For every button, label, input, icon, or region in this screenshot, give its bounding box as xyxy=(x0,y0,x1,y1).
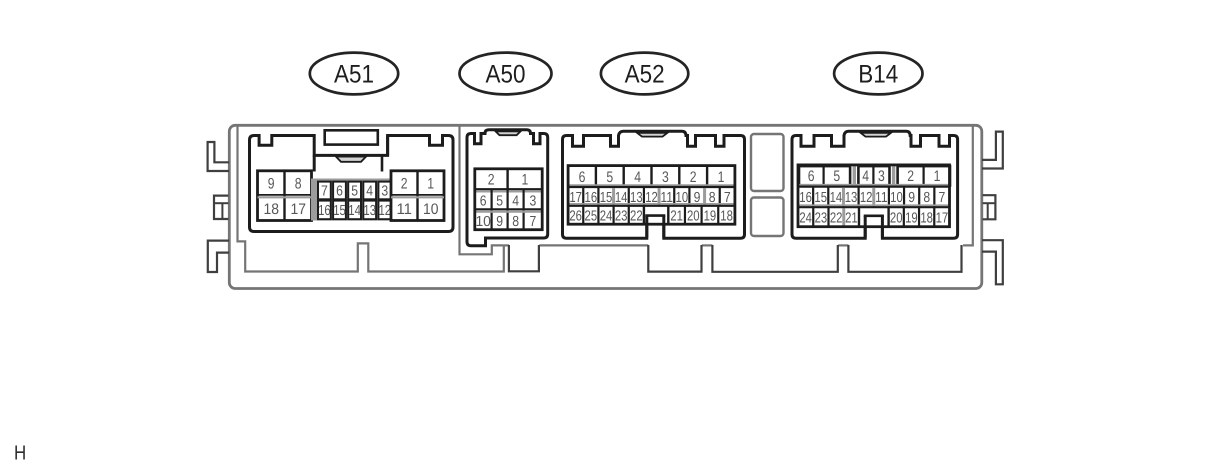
svg-text:10: 10 xyxy=(890,190,903,206)
svg-text:6: 6 xyxy=(579,169,586,186)
svg-text:14: 14 xyxy=(830,190,843,206)
svg-text:10: 10 xyxy=(423,201,439,218)
svg-text:20: 20 xyxy=(687,209,700,225)
svg-text:19: 19 xyxy=(704,209,717,225)
svg-text:1: 1 xyxy=(522,172,529,189)
svg-text:5: 5 xyxy=(351,184,358,200)
svg-text:18: 18 xyxy=(920,210,933,226)
svg-text:2: 2 xyxy=(907,168,914,185)
svg-text:13: 13 xyxy=(845,190,858,206)
svg-text:19: 19 xyxy=(905,210,918,226)
svg-text:5: 5 xyxy=(606,169,613,186)
svg-text:4: 4 xyxy=(862,168,869,185)
svg-text:21: 21 xyxy=(670,209,683,225)
svg-text:11: 11 xyxy=(875,190,888,206)
svg-text:A52: A52 xyxy=(625,61,665,89)
svg-text:12: 12 xyxy=(379,203,392,219)
svg-text:18: 18 xyxy=(263,201,279,218)
svg-text:18: 18 xyxy=(720,209,733,225)
svg-text:23: 23 xyxy=(615,209,628,225)
svg-text:6: 6 xyxy=(808,168,815,185)
svg-text:5: 5 xyxy=(496,194,503,210)
svg-text:7: 7 xyxy=(530,214,537,230)
svg-text:22: 22 xyxy=(630,209,643,225)
svg-text:8: 8 xyxy=(923,190,930,206)
svg-text:16: 16 xyxy=(318,203,331,219)
svg-text:5: 5 xyxy=(833,168,840,185)
svg-text:1: 1 xyxy=(718,169,725,186)
svg-text:24: 24 xyxy=(600,209,613,225)
svg-text:12: 12 xyxy=(860,190,873,206)
svg-text:B14: B14 xyxy=(858,61,898,89)
svg-text:2: 2 xyxy=(401,176,408,193)
svg-text:20: 20 xyxy=(890,210,903,226)
svg-text:17: 17 xyxy=(290,201,306,218)
svg-text:H: H xyxy=(14,443,26,465)
svg-text:1: 1 xyxy=(427,176,434,193)
svg-text:16: 16 xyxy=(799,190,812,206)
svg-text:2: 2 xyxy=(690,169,697,186)
svg-text:1: 1 xyxy=(934,168,941,185)
svg-text:7: 7 xyxy=(321,184,328,200)
svg-text:8: 8 xyxy=(512,214,519,230)
svg-text:9: 9 xyxy=(496,214,503,230)
svg-text:3: 3 xyxy=(878,168,885,185)
svg-text:3: 3 xyxy=(662,169,669,186)
svg-text:14: 14 xyxy=(348,203,361,219)
svg-text:22: 22 xyxy=(830,210,843,226)
svg-text:25: 25 xyxy=(585,209,598,225)
svg-text:15: 15 xyxy=(333,203,346,219)
svg-text:24: 24 xyxy=(799,210,812,226)
svg-text:15: 15 xyxy=(814,190,827,206)
svg-text:2: 2 xyxy=(488,172,495,189)
svg-text:13: 13 xyxy=(363,203,376,219)
svg-text:4: 4 xyxy=(634,169,641,186)
svg-text:9: 9 xyxy=(908,190,915,206)
svg-text:3: 3 xyxy=(381,184,388,200)
svg-text:3: 3 xyxy=(530,194,537,210)
svg-text:10: 10 xyxy=(475,214,491,230)
svg-text:9: 9 xyxy=(268,176,275,193)
svg-text:8: 8 xyxy=(295,176,302,193)
svg-text:17: 17 xyxy=(936,210,949,226)
svg-text:11: 11 xyxy=(396,201,412,218)
svg-text:23: 23 xyxy=(815,210,828,226)
svg-text:26: 26 xyxy=(569,209,582,225)
svg-text:21: 21 xyxy=(845,210,858,226)
svg-text:6: 6 xyxy=(480,194,487,210)
svg-text:7: 7 xyxy=(939,190,946,206)
svg-text:4: 4 xyxy=(512,194,519,210)
svg-text:A50: A50 xyxy=(486,61,526,89)
svg-text:4: 4 xyxy=(366,184,373,200)
svg-text:6: 6 xyxy=(336,184,343,200)
svg-text:A51: A51 xyxy=(334,61,374,89)
